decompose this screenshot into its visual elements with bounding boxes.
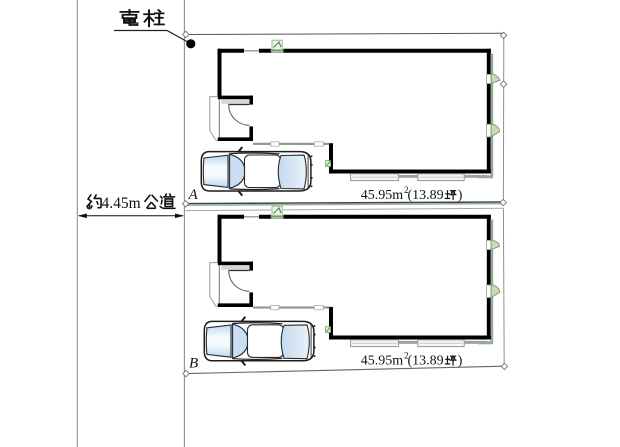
- svg-text:4.45m: 4.45m: [102, 195, 141, 212]
- svg-text:(13.89: (13.89: [408, 188, 444, 203]
- svg-text:): ): [458, 354, 463, 369]
- svg-text:45.95m: 45.95m: [361, 354, 404, 369]
- svg-text:): ): [458, 188, 463, 203]
- svg-text:A: A: [188, 187, 199, 203]
- svg-text:B: B: [189, 356, 198, 372]
- svg-text:45.95m: 45.95m: [361, 188, 404, 203]
- svg-text:(13.89: (13.89: [408, 354, 444, 369]
